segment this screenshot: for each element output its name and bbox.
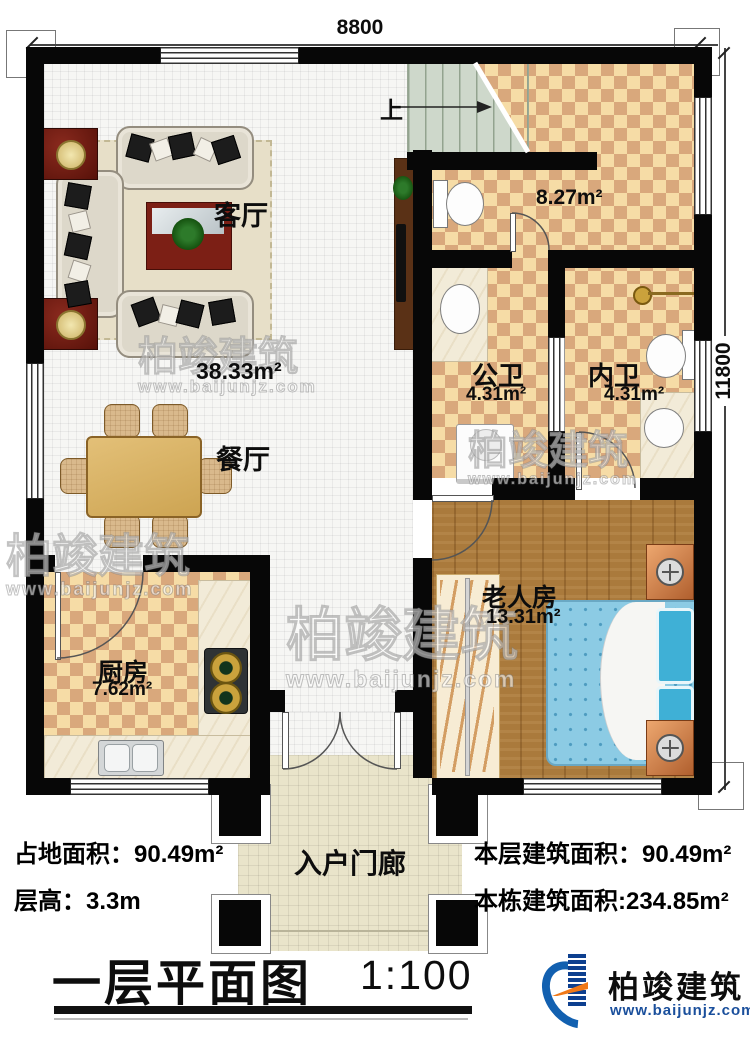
room-area-living: 38.33m² [196, 358, 282, 385]
wall-bedroom-top-c [640, 478, 695, 500]
wall-living-bath-divider [413, 150, 432, 500]
tv-icon [396, 224, 406, 302]
top-dimension-line [30, 44, 718, 46]
title-underline-thick [54, 1006, 472, 1014]
plant-icon [393, 176, 413, 200]
wall-kitchen-top-a [44, 555, 55, 572]
porch-column-tr [436, 790, 478, 836]
window-bottom-kitchen [70, 778, 209, 795]
entry-door-leaf-right [394, 712, 401, 769]
room-area-public-bath: 4.31m² [466, 384, 526, 406]
window-right-innerbath [694, 340, 712, 432]
right-dimension-line [724, 48, 726, 790]
wall-bedroom-top-a [413, 478, 432, 500]
title-underline-thin [54, 1018, 468, 1020]
entry-door-leaf-left [282, 712, 289, 769]
wall-bath-divider-upper [548, 268, 565, 337]
window-bottom-bedroom [523, 778, 662, 795]
wall-bath-top-a [432, 250, 512, 268]
wardrobe-rail [465, 578, 470, 776]
wall-bedroom-top-b [492, 478, 575, 500]
exterior-wall-right-a [694, 47, 712, 97]
stairs-up-label: 上 [380, 91, 403, 125]
bedroom-door-leaf [432, 495, 494, 502]
glass-between-baths [548, 337, 565, 432]
porch-column-bl [219, 900, 261, 946]
floor-height-text: 层高：3.3m [14, 881, 141, 916]
towel-bar [648, 292, 694, 295]
kitchen-door-leaf [55, 572, 61, 660]
wall-entry-right-pier [395, 690, 432, 712]
dining-chair [104, 514, 140, 548]
nightstand-lamp-icon [656, 734, 684, 762]
exterior-wall-left-lower [26, 497, 44, 795]
floor-built-area-text: 本层建筑面积：90.49m² [474, 834, 731, 869]
public-bath-sink-icon [440, 284, 480, 334]
kitchen-sink-basin [104, 744, 130, 772]
dining-chair [152, 404, 188, 438]
sofa-pillow [64, 182, 92, 210]
top-dimension-label: 8800 [325, 16, 395, 40]
brand-logo: 柏竣建筑 www.baijunjz.com [546, 952, 746, 1032]
window-top-living [160, 47, 299, 64]
dining-table [86, 436, 202, 518]
stove-burner-icon [210, 652, 242, 684]
sofa-pillow [208, 298, 236, 326]
kitchen-sink-basin [132, 744, 158, 772]
wall-kitchen-right [250, 555, 270, 795]
plant-icon [172, 218, 204, 250]
toilet-bowl-icon [646, 334, 686, 378]
porch-step-line [240, 930, 460, 932]
total-built-area-text: 本栋建筑面积:234.85m² [474, 881, 729, 916]
exterior-wall-bottom-d [660, 778, 712, 795]
dining-chair [104, 404, 140, 438]
window-right-stairhall [694, 97, 712, 215]
nightstand-lamp-icon [656, 558, 684, 586]
right-dimension-label: 11800 [712, 336, 734, 406]
brand-company: 柏竣建筑 [608, 962, 744, 1007]
entry-vestibule-floor [270, 712, 432, 756]
exterior-wall-bottom-a [26, 778, 70, 795]
inner-bath-sink-icon [644, 408, 684, 448]
room-area-kitchen: 7.62m² [92, 679, 152, 701]
logo-building-icon [568, 954, 586, 1008]
wall-bath-top-b [548, 250, 695, 268]
plan-scale: 1:100 [360, 952, 473, 999]
sofa-pillow [64, 232, 92, 260]
porch-column-br [436, 900, 478, 946]
room-label-dining: 餐厅 [216, 438, 270, 477]
room-label-living: 客厅 [214, 194, 268, 233]
window-left-living [26, 363, 44, 499]
floor-plan-canvas: 8800 11800 [0, 0, 750, 1041]
towel-ring-icon [633, 286, 652, 305]
exterior-wall-top-right [297, 47, 712, 64]
room-area-elder-bedroom: 13.31m² [486, 606, 561, 629]
exterior-wall-left-upper [26, 47, 44, 363]
wall-entry-left-pier [250, 690, 285, 712]
sofa-pillow [64, 280, 92, 308]
room-area-inner-bath: 4.31m² [604, 384, 664, 406]
porch-column-tl [219, 790, 261, 836]
inner-bath-door-leaf [576, 432, 582, 490]
exterior-wall-right-b [694, 213, 712, 340]
dining-chair [152, 514, 188, 548]
exterior-wall-top-left [26, 47, 160, 64]
room-label-entry-porch: 入户门廊 [294, 842, 406, 882]
bed-pillow [656, 608, 694, 684]
table-lamp-icon [56, 140, 86, 170]
public-bath-door-leaf [510, 213, 516, 252]
exterior-wall-right-c [694, 430, 712, 795]
site-area-text: 占地面积：90.49m² [14, 834, 223, 869]
washing-machine-drum [470, 429, 502, 461]
toilet-bowl-icon [446, 182, 484, 226]
plan-title: 一层平面图 [52, 944, 312, 1015]
room-area-stairhall: 8.27m² [536, 186, 603, 210]
sofa-pillow [168, 132, 196, 160]
wall-bedroom-left [413, 558, 432, 778]
wall-bath-divider-lower [548, 430, 565, 478]
stove-burner-icon [210, 682, 242, 714]
table-lamp-icon [56, 310, 86, 340]
wall-under-stairs [407, 152, 597, 170]
